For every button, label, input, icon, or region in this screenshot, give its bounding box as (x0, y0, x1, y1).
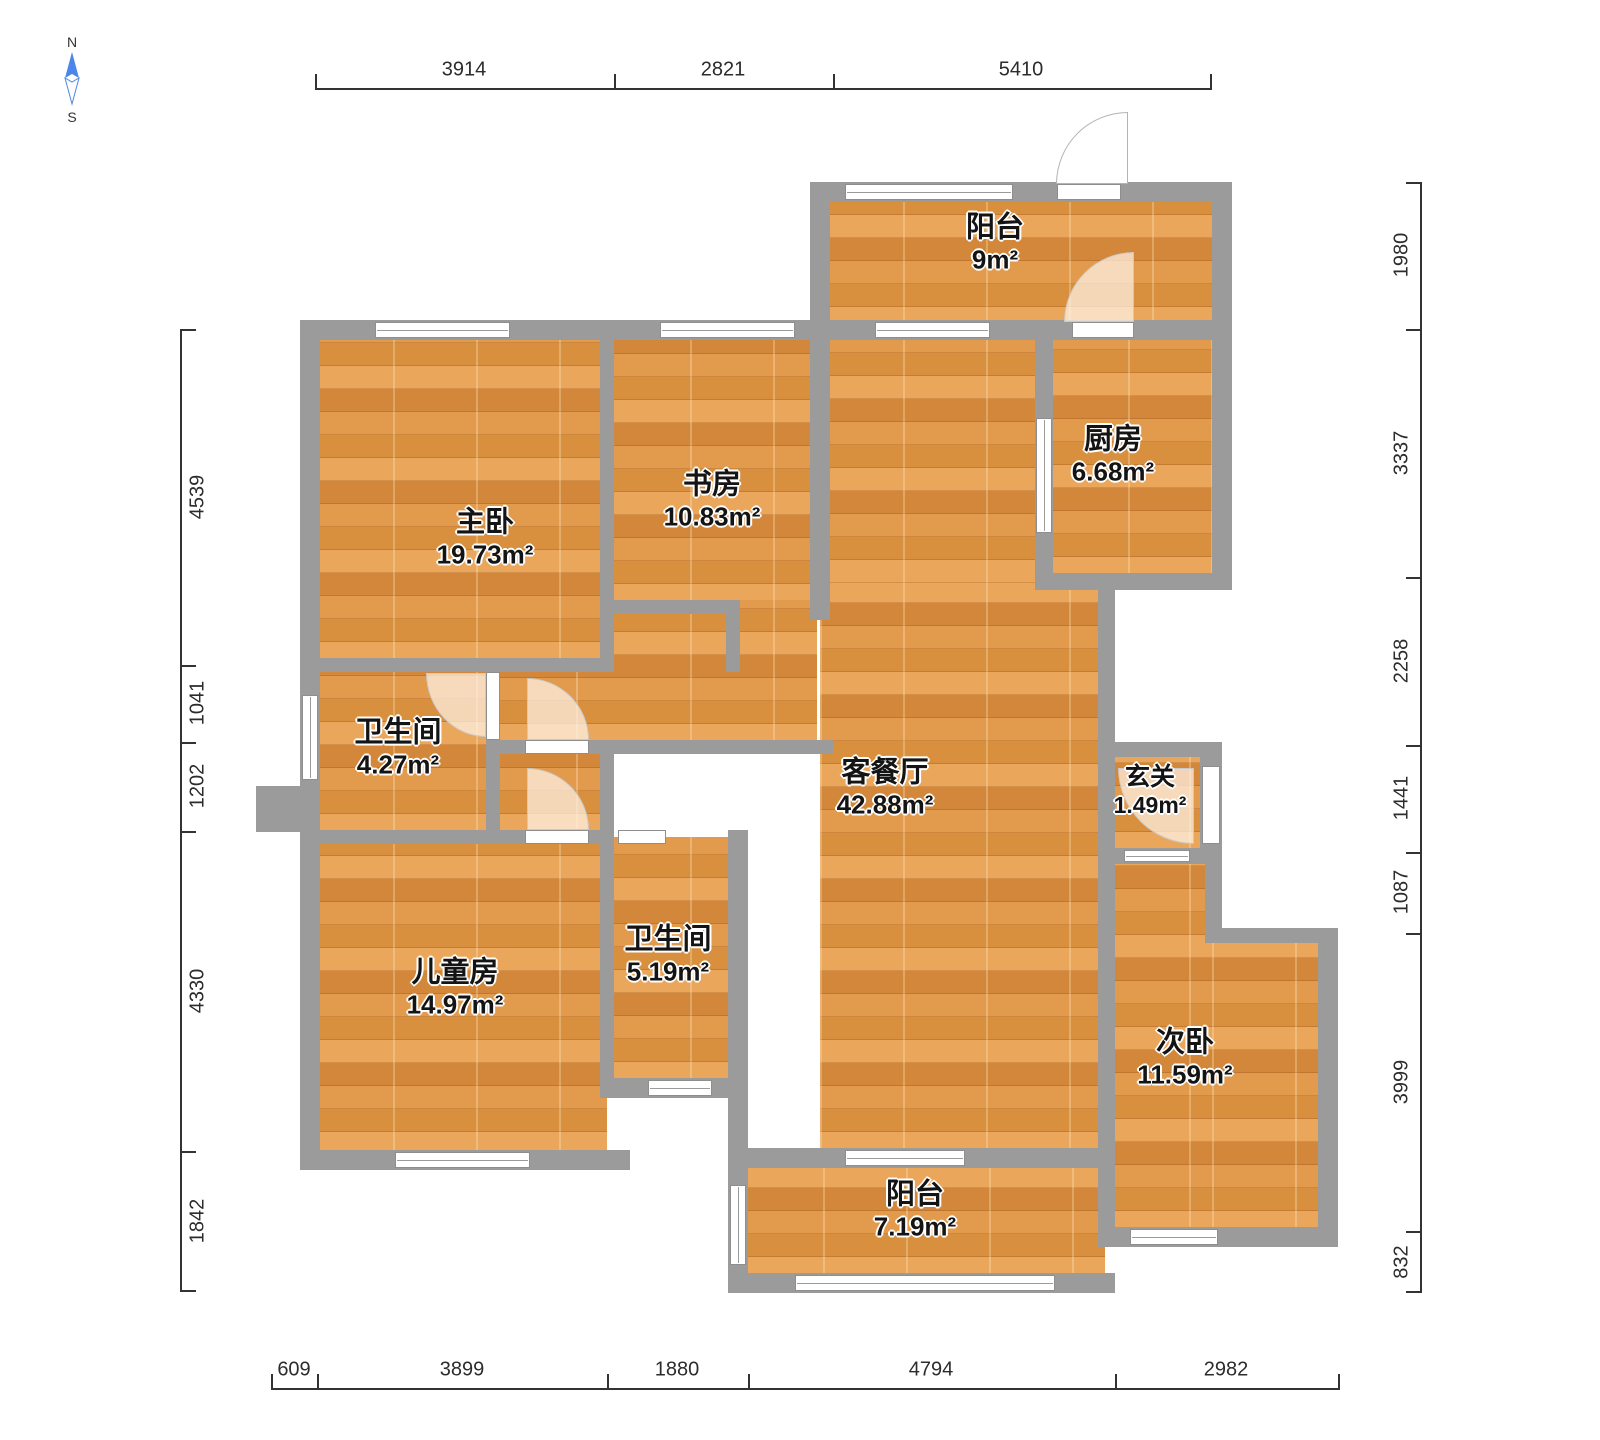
room-label-master-bedroom: 主卧 19.73m² (437, 506, 534, 571)
dimension-tick (271, 1374, 273, 1390)
room-area: 10.83m² (664, 502, 761, 532)
floor-hallway (607, 600, 817, 747)
dimension-tick (1406, 852, 1422, 854)
dimension-tick (1406, 1231, 1422, 1233)
door-swing-arc (1056, 112, 1128, 184)
dimension-tick (607, 1374, 609, 1390)
window (375, 322, 510, 338)
room-name: 玄关 (1114, 762, 1187, 792)
dimension-tick (180, 329, 196, 331)
wall (600, 740, 614, 830)
wall (600, 340, 614, 658)
dimension-tick (748, 1374, 750, 1390)
room-name: 书房 (664, 468, 761, 503)
floor-master-bedroom (310, 330, 610, 665)
dimension-value: 609 (277, 1359, 310, 1382)
dimension-value: 1441 (1391, 776, 1414, 821)
room-name: 客餐厅 (837, 756, 934, 791)
room-label-living-dining: 客餐厅 42.88m² (837, 756, 934, 821)
room-area: 5.19m² (624, 957, 711, 987)
room-area: 19.73m² (437, 540, 534, 570)
dimension-value: 1041 (187, 681, 210, 726)
dimension-value: 3337 (1391, 431, 1414, 476)
door-leaf (525, 740, 589, 754)
compass-south-label: S (52, 109, 92, 125)
wall (1098, 590, 1115, 1231)
floor-living-dining (820, 583, 1106, 1155)
room-area: 11.59m² (1137, 1060, 1232, 1090)
room-name: 儿童房 (407, 956, 504, 991)
wall (614, 600, 740, 614)
dimension-tick (1406, 329, 1422, 331)
room-name: 卫生间 (624, 923, 711, 958)
window (795, 1275, 1055, 1291)
entry-door-leaf (1202, 766, 1220, 844)
dimension-value: 2258 (1391, 639, 1414, 684)
dimension-tick (1406, 1291, 1422, 1293)
window (1124, 850, 1190, 862)
room-label-bathroom-1: 卫生间 4.27m² (354, 716, 441, 781)
door-leaf (1057, 184, 1121, 200)
wall (1035, 573, 1232, 590)
dimension-value: 1087 (1391, 870, 1414, 915)
dimension-tick (1115, 1374, 1117, 1390)
room-area: 6.68m² (1072, 457, 1154, 487)
window (395, 1152, 530, 1168)
room-label-kids-room: 儿童房 14.97m² (407, 956, 504, 1021)
dimension-tick (317, 1374, 319, 1390)
room-label-bathroom-2: 卫生间 5.19m² (624, 923, 711, 988)
room-area: 42.88m² (837, 790, 934, 820)
wall (600, 844, 614, 1098)
dimension-line-right (1420, 182, 1422, 1293)
room-area: 9m² (966, 245, 1024, 275)
room-label-balcony-top: 阳台 9m² (966, 211, 1024, 276)
door-leaf (618, 830, 666, 844)
room-name: 阳台 (874, 1178, 956, 1213)
dimension-value: 3899 (440, 1359, 485, 1382)
compass-north-label: N (52, 34, 92, 50)
room-label-second-bedroom: 次卧 11.59m² (1137, 1026, 1232, 1091)
room-name: 卫生间 (354, 716, 441, 751)
wall (726, 614, 740, 672)
wall (1212, 182, 1232, 590)
dimension-tick (833, 74, 835, 90)
room-name: 厨房 (1072, 423, 1154, 458)
dimension-value: 1202 (187, 764, 210, 809)
window (845, 184, 1013, 200)
sliding-window (875, 322, 990, 338)
wall (810, 340, 830, 620)
dimension-tick (1406, 182, 1422, 184)
dimension-line-bottom (271, 1388, 1340, 1390)
dimension-value: 1880 (655, 1359, 700, 1382)
dimension-value: 2821 (701, 59, 746, 82)
dimension-value: 1980 (1391, 233, 1414, 278)
dimension-tick (315, 74, 317, 90)
sliding-window (845, 1150, 965, 1166)
wall (1318, 928, 1338, 1247)
dimension-line-left (180, 329, 182, 1292)
dimension-tick (1406, 577, 1422, 579)
door-leaf (1072, 322, 1134, 338)
room-name: 主卧 (437, 506, 534, 541)
sliding-door (1036, 418, 1052, 533)
room-label-foyer: 玄关 1.49m² (1114, 762, 1187, 818)
dimension-tick (180, 1151, 196, 1153)
dimension-value: 3999 (1391, 1060, 1414, 1105)
room-area: 1.49m² (1114, 792, 1187, 818)
dimension-tick (180, 742, 196, 744)
compass-needle-icon (60, 50, 84, 106)
dimension-value: 1842 (187, 1199, 210, 1244)
floor-living-dining (820, 330, 1042, 583)
room-label-kitchen: 厨房 6.68m² (1072, 423, 1154, 488)
dimension-tick (614, 74, 616, 90)
room-area: 4.27m² (354, 750, 441, 780)
dimension-tick (180, 665, 196, 667)
dimension-tick (1210, 74, 1212, 90)
wall (810, 182, 830, 340)
dimension-value: 2982 (1204, 1359, 1249, 1382)
dimension-value: 4794 (909, 1359, 954, 1382)
dimension-value: 4539 (187, 475, 210, 520)
floor-plan-canvas: N S (0, 0, 1600, 1440)
dimension-tick (1338, 1374, 1340, 1390)
room-area: 14.97m² (407, 990, 504, 1020)
room-label-balcony-bottom: 阳台 7.19m² (874, 1178, 956, 1243)
dimension-value: 832 (1391, 1245, 1414, 1278)
dimension-tick (1406, 933, 1422, 935)
window (302, 695, 318, 780)
dimension-tick (180, 1290, 196, 1292)
room-area: 7.19m² (874, 1212, 956, 1242)
window (660, 322, 795, 338)
dimension-value: 5410 (999, 59, 1044, 82)
room-name: 次卧 (1137, 1026, 1232, 1061)
room-name: 阳台 (966, 211, 1024, 246)
dimension-value: 3914 (442, 59, 487, 82)
room-label-study: 书房 10.83m² (664, 468, 761, 533)
window (648, 1080, 712, 1096)
window (730, 1185, 746, 1265)
wall (728, 830, 748, 1098)
wall (1098, 742, 1222, 757)
door-leaf (525, 830, 589, 844)
dimension-tick (180, 831, 196, 833)
dimension-value: 4330 (187, 969, 210, 1014)
dimension-line-top (315, 88, 1212, 90)
window (1130, 1229, 1218, 1245)
wall (300, 658, 614, 672)
door-leaf (486, 672, 500, 740)
dimension-tick (1406, 745, 1422, 747)
compass: N S (52, 34, 92, 125)
wall (256, 786, 320, 832)
